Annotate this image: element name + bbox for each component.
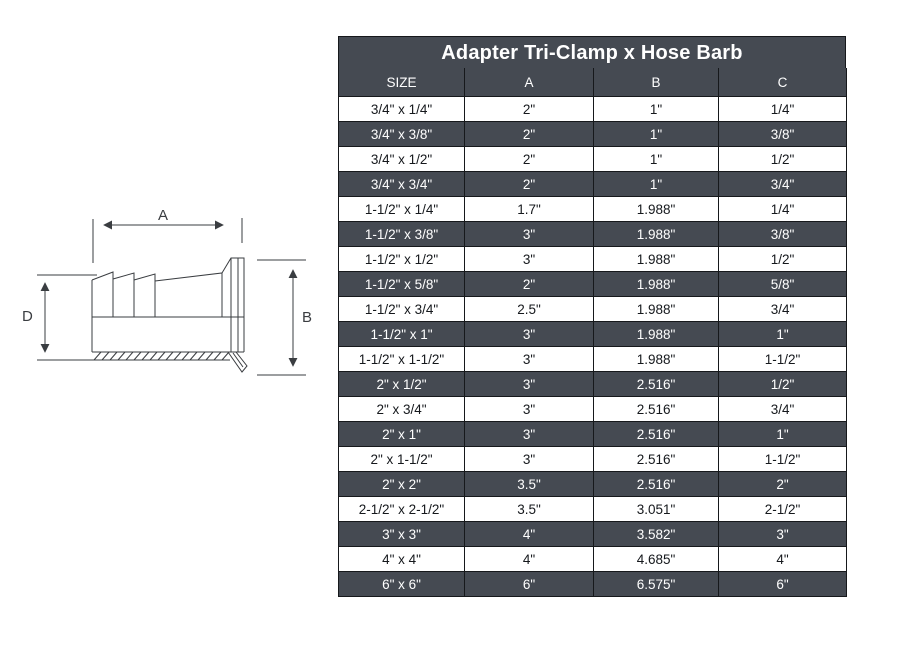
cell-b: 2.516" (594, 447, 719, 472)
cell-b: 1" (594, 172, 719, 197)
cell-a: 2" (465, 172, 594, 197)
table-row: 3/4" x 3/8"2"1"3/8" (339, 122, 847, 147)
cell-size: 1-1/2" x 1" (339, 322, 465, 347)
table-row: 2" x 1/2"3"2.516"1/2" (339, 372, 847, 397)
cell-a: 4" (465, 547, 594, 572)
cell-b: 6.575" (594, 572, 719, 597)
dimension-a: A (93, 207, 242, 263)
cell-size: 1-1/2" x 1/2" (339, 247, 465, 272)
table-body: 3/4" x 1/4"2"1"1/4"3/4" x 3/8"2"1"3/8"3/… (339, 97, 847, 597)
cell-a: 4" (465, 522, 594, 547)
table-row: 1-1/2" x 1/2"3"1.988"1/2" (339, 247, 847, 272)
table-title: Adapter Tri-Clamp x Hose Barb (338, 36, 846, 68)
table-row: 1-1/2" x 5/8"2"1.988"5/8" (339, 272, 847, 297)
cell-size: 3" x 3" (339, 522, 465, 547)
spec-table: Adapter Tri-Clamp x Hose Barb SIZE A B C… (338, 36, 846, 597)
table-row: 2" x 3/4"3"2.516"3/4" (339, 397, 847, 422)
table-row: 1-1/2" x 3/8"3"1.988"3/8" (339, 222, 847, 247)
cell-size: 3/4" x 3/8" (339, 122, 465, 147)
cell-c: 6" (719, 572, 847, 597)
dimensions-table: SIZE A B C 3/4" x 1/4"2"1"1/4"3/4" x 3/8… (338, 68, 847, 597)
cell-c: 1/2" (719, 147, 847, 172)
cell-size: 2" x 2" (339, 472, 465, 497)
table-row: 1-1/2" x 3/4"2.5"1.988"3/4" (339, 297, 847, 322)
cell-a: 2" (465, 122, 594, 147)
table-row: 2-1/2" x 2-1/2"3.5"3.051"2-1/2" (339, 497, 847, 522)
cell-c: 1/2" (719, 247, 847, 272)
cell-c: 3/4" (719, 172, 847, 197)
cell-b: 3.051" (594, 497, 719, 522)
cell-a: 1.7" (465, 197, 594, 222)
cell-c: 1" (719, 322, 847, 347)
table-row: 1-1/2" x 1-1/2"3"1.988"1-1/2" (339, 347, 847, 372)
cell-a: 6" (465, 572, 594, 597)
col-header-b: B (594, 68, 719, 97)
cell-b: 4.685" (594, 547, 719, 572)
cell-a: 3.5" (465, 472, 594, 497)
dimension-b: B (257, 260, 312, 375)
cell-b: 3.582" (594, 522, 719, 547)
flange-flare (228, 352, 247, 372)
cell-c: 3/8" (719, 122, 847, 147)
dim-b-label: B (302, 309, 312, 326)
cell-size: 2" x 1-1/2" (339, 447, 465, 472)
cell-a: 2" (465, 97, 594, 122)
cell-c: 1/4" (719, 97, 847, 122)
cell-size: 2" x 1/2" (339, 372, 465, 397)
cell-a: 3" (465, 222, 594, 247)
cell-b: 1.988" (594, 272, 719, 297)
cell-c: 4" (719, 547, 847, 572)
serration-hatch (92, 352, 230, 360)
table-row: 3/4" x 1/4"2"1"1/4" (339, 97, 847, 122)
col-header-a: A (465, 68, 594, 97)
cell-b: 1.988" (594, 322, 719, 347)
cell-c: 3/4" (719, 297, 847, 322)
cell-size: 1-1/2" x 5/8" (339, 272, 465, 297)
cell-c: 1-1/2" (719, 447, 847, 472)
table-row: 2" x 1-1/2"3"2.516"1-1/2" (339, 447, 847, 472)
cell-b: 1" (594, 147, 719, 172)
cell-a: 2" (465, 147, 594, 172)
cell-b: 2.516" (594, 372, 719, 397)
cell-b: 1" (594, 122, 719, 147)
hose-barb-body (92, 258, 247, 372)
cell-b: 1" (594, 97, 719, 122)
cell-size: 1-1/2" x 3/8" (339, 222, 465, 247)
cell-c: 3" (719, 522, 847, 547)
table-row: 3/4" x 3/4"2"1"3/4" (339, 172, 847, 197)
table-row: 4" x 4"4"4.685"4" (339, 547, 847, 572)
cell-b: 2.516" (594, 422, 719, 447)
cell-b: 1.988" (594, 222, 719, 247)
cell-c: 1/4" (719, 197, 847, 222)
table-row: 2" x 1"3"2.516"1" (339, 422, 847, 447)
cell-c: 3/4" (719, 397, 847, 422)
cell-size: 2" x 3/4" (339, 397, 465, 422)
cell-c: 1/2" (719, 372, 847, 397)
cell-a: 2" (465, 272, 594, 297)
cell-size: 3/4" x 1/2" (339, 147, 465, 172)
table-row: 6" x 6"6"6.575"6" (339, 572, 847, 597)
cell-a: 3" (465, 397, 594, 422)
dim-d-label: D (22, 308, 33, 325)
table-row: 1-1/2" x 1"3"1.988"1" (339, 322, 847, 347)
col-header-c: C (719, 68, 847, 97)
fitting-diagram: A D B (20, 198, 330, 393)
cell-size: 6" x 6" (339, 572, 465, 597)
cell-size: 1-1/2" x 1-1/2" (339, 347, 465, 372)
cell-a: 3" (465, 247, 594, 272)
cell-b: 1.988" (594, 197, 719, 222)
cell-a: 3" (465, 422, 594, 447)
dimension-d: D (22, 275, 97, 360)
table-row: 2" x 2"3.5"2.516"2" (339, 472, 847, 497)
cell-size: 1-1/2" x 3/4" (339, 297, 465, 322)
cell-a: 3" (465, 322, 594, 347)
cell-size: 1-1/2" x 1/4" (339, 197, 465, 222)
cell-size: 2-1/2" x 2-1/2" (339, 497, 465, 522)
column-header-row: SIZE A B C (339, 68, 847, 97)
col-header-size: SIZE (339, 68, 465, 97)
cell-a: 3.5" (465, 497, 594, 522)
cell-a: 3" (465, 347, 594, 372)
table-row: 3" x 3"4"3.582"3" (339, 522, 847, 547)
cell-c: 3/8" (719, 222, 847, 247)
cell-c: 1" (719, 422, 847, 447)
cell-c: 5/8" (719, 272, 847, 297)
cell-size: 4" x 4" (339, 547, 465, 572)
cell-b: 1.988" (594, 347, 719, 372)
cell-a: 3" (465, 447, 594, 472)
cell-b: 2.516" (594, 397, 719, 422)
cell-c: 2-1/2" (719, 497, 847, 522)
cell-c: 2" (719, 472, 847, 497)
cell-a: 3" (465, 372, 594, 397)
cell-b: 1.988" (594, 247, 719, 272)
dim-a-label: A (158, 207, 168, 224)
cell-size: 3/4" x 3/4" (339, 172, 465, 197)
cell-b: 2.516" (594, 472, 719, 497)
cell-size: 2" x 1" (339, 422, 465, 447)
cell-size: 3/4" x 1/4" (339, 97, 465, 122)
cell-c: 1-1/2" (719, 347, 847, 372)
table-row: 1-1/2" x 1/4"1.7"1.988"1/4" (339, 197, 847, 222)
cell-a: 2.5" (465, 297, 594, 322)
table-row: 3/4" x 1/2"2"1"1/2" (339, 147, 847, 172)
cell-b: 1.988" (594, 297, 719, 322)
fitting-drawing: A D B (20, 198, 330, 393)
